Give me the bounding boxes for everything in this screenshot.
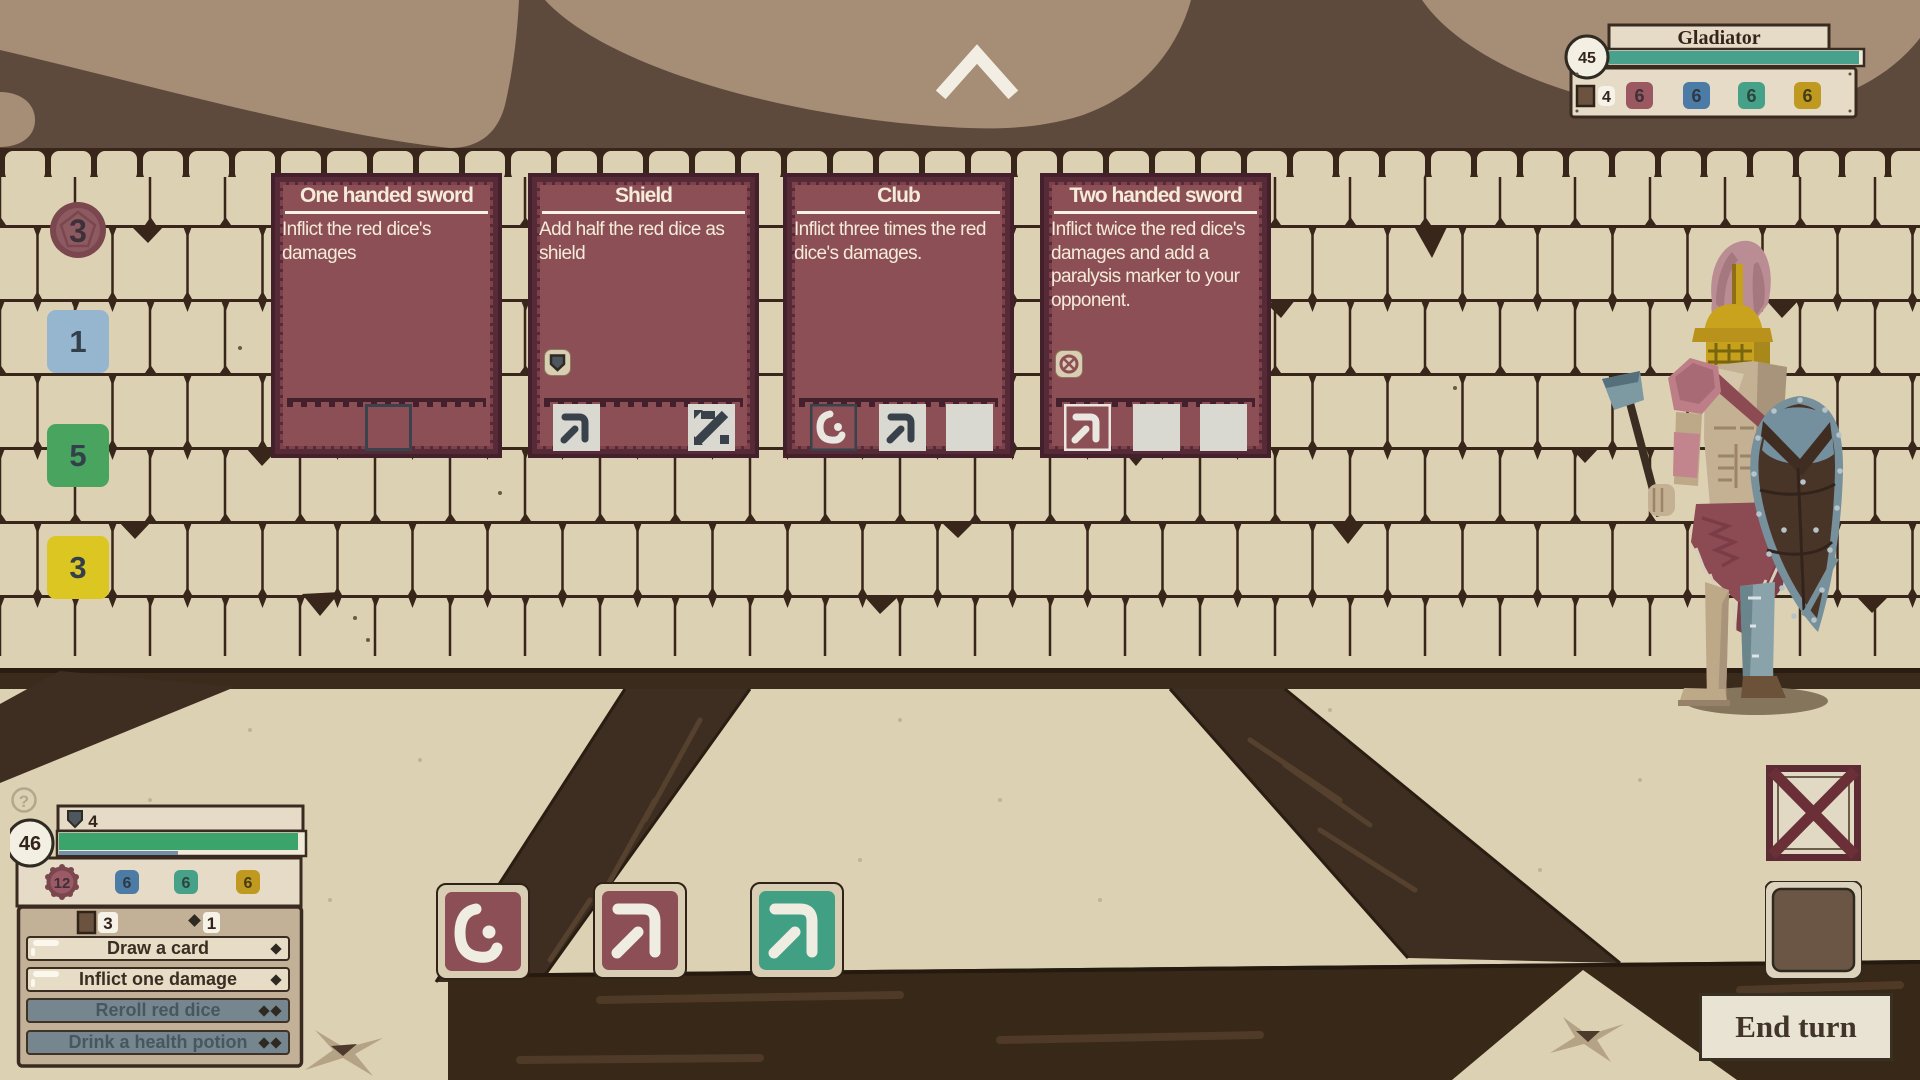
svg-text:3: 3 [103,914,112,933]
svg-text:6: 6 [182,875,191,892]
svg-text:12: 12 [54,875,71,892]
svg-text:6: 6 [244,875,253,892]
svg-text:4: 4 [1602,89,1611,106]
svg-text:1: 1 [207,914,216,933]
svg-text:6: 6 [123,875,132,892]
svg-text:4: 4 [88,812,98,831]
svg-text:46: 46 [19,833,41,855]
svg-text:6: 6 [1746,86,1756,106]
svg-text:6: 6 [1634,86,1644,106]
svg-text:6: 6 [1691,86,1701,106]
svg-text:Gladiator: Gladiator [1677,27,1760,49]
svg-text:45: 45 [1578,50,1596,67]
svg-text:6: 6 [1802,86,1812,106]
svg-text:3: 3 [69,213,87,249]
